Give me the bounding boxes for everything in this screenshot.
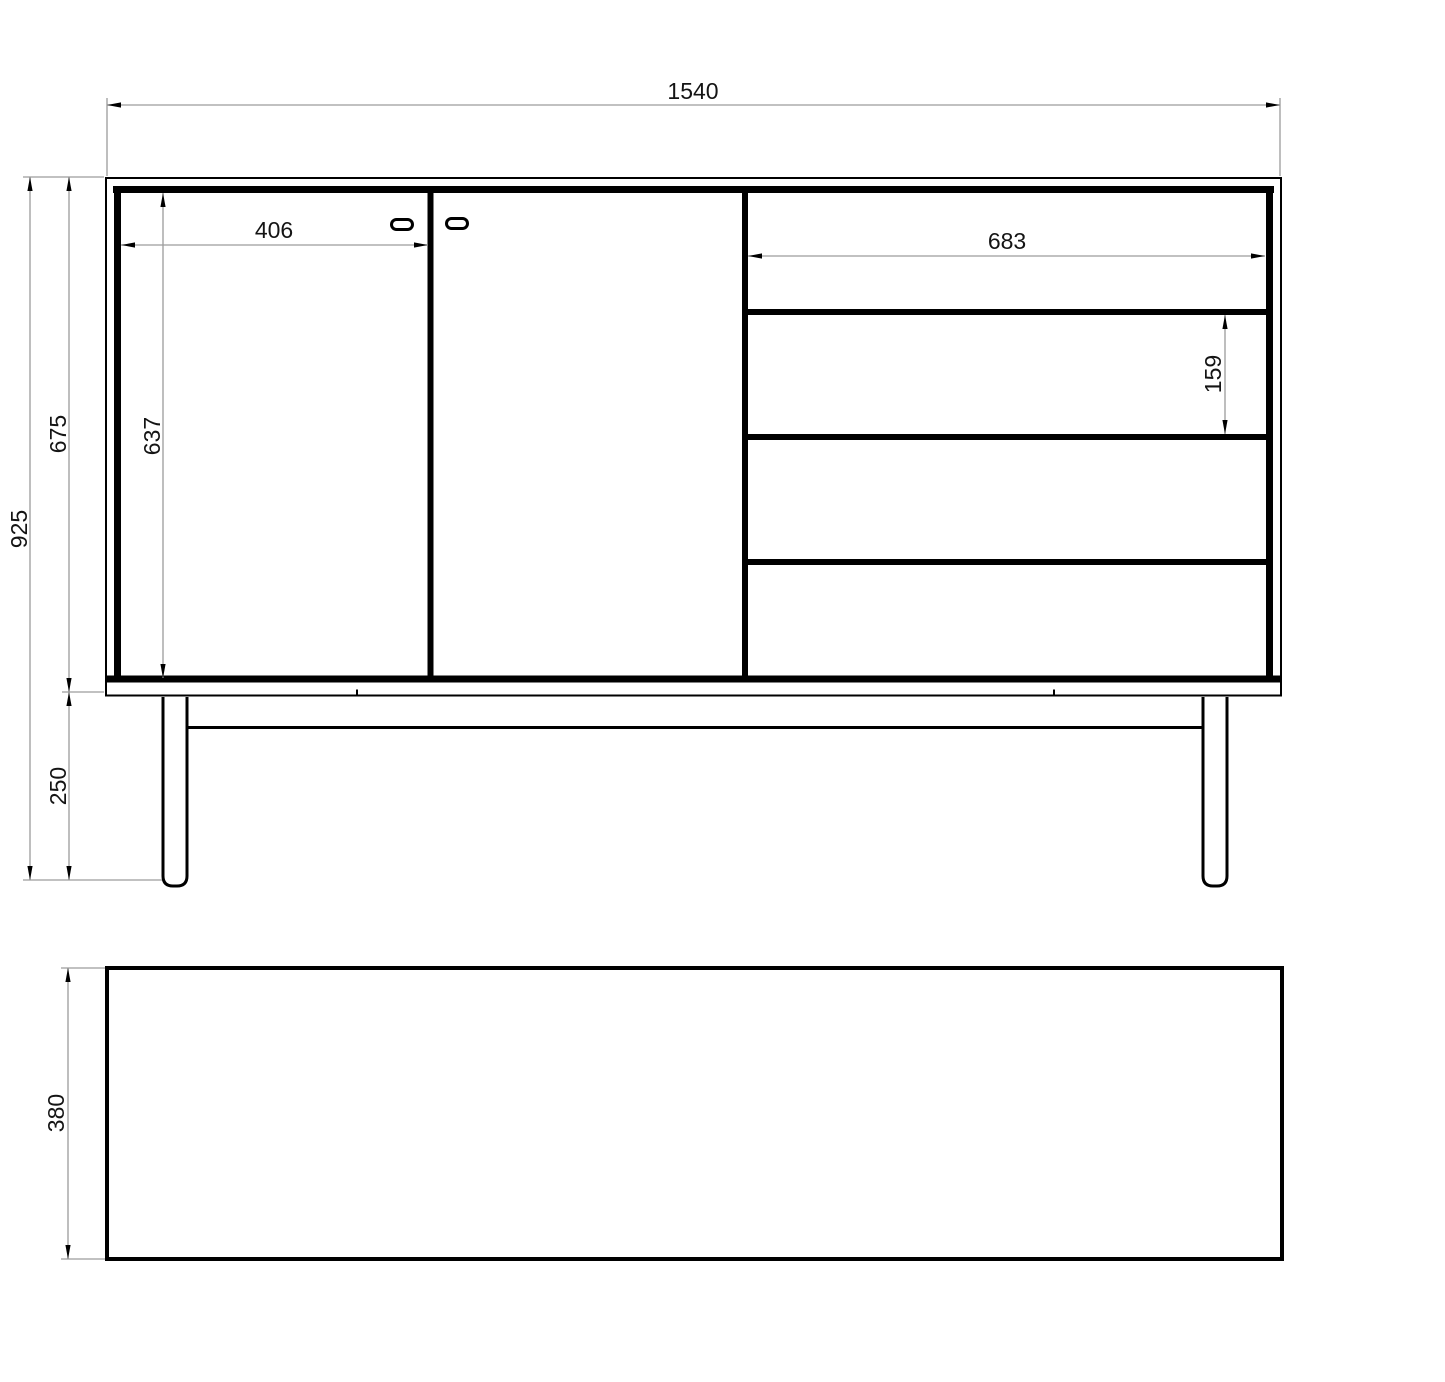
dimension-carcass-height: 675 xyxy=(45,177,104,692)
dimension-depth: 380 xyxy=(43,968,105,1259)
dim-label-carcass-height: 675 xyxy=(45,415,71,453)
dim-label-door-height: 637 xyxy=(139,417,165,455)
drawing-canvas: 1540 925 675 250 xyxy=(0,0,1445,1382)
dim-label-overall-width: 1540 xyxy=(667,78,718,104)
top-view-outline xyxy=(107,968,1282,1259)
dim-label-leg-height: 250 xyxy=(45,767,71,805)
dimension-door-width: 406 xyxy=(121,217,428,248)
dimension-drawer-height: 159 xyxy=(1200,315,1228,434)
left-door-handle-icon xyxy=(392,220,413,230)
right-door-handle-icon xyxy=(447,219,468,229)
left-leg xyxy=(163,697,187,886)
right-leg xyxy=(1203,697,1227,886)
dimension-drawer-width: 683 xyxy=(748,228,1265,259)
dimension-door-height: 637 xyxy=(139,193,166,678)
dim-label-depth: 380 xyxy=(43,1094,69,1132)
dim-label-door-width: 406 xyxy=(255,217,293,243)
top-view xyxy=(107,968,1282,1259)
dimension-leg-height: 250 xyxy=(45,692,72,880)
dimension-overall-width: 1540 xyxy=(107,78,1280,176)
dim-label-overall-height: 925 xyxy=(6,510,32,548)
technical-drawing-svg: 1540 925 675 250 xyxy=(0,0,1445,1382)
dim-label-drawer-width: 683 xyxy=(988,228,1026,254)
front-view xyxy=(105,177,1282,886)
dimension-overall-height: 925 xyxy=(6,177,162,880)
dim-label-drawer-height: 159 xyxy=(1200,355,1226,393)
